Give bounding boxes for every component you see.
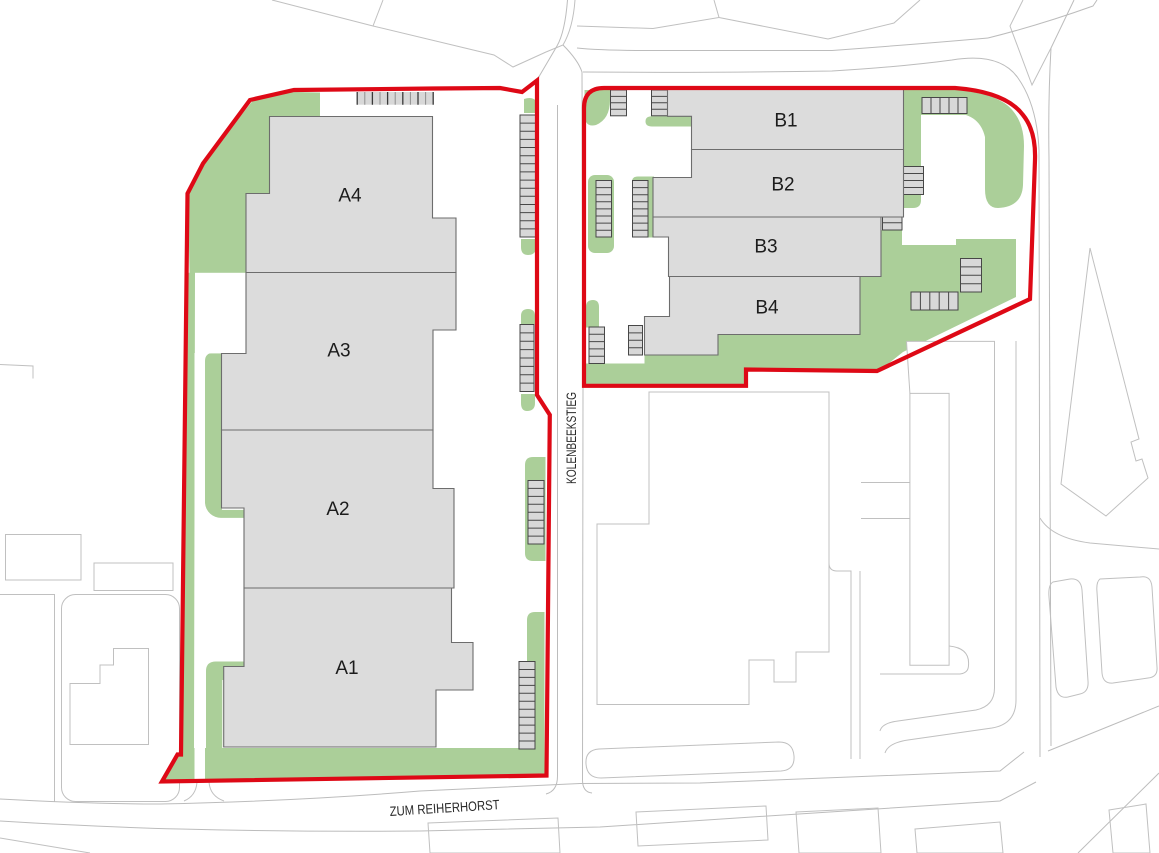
- svg-text:A4: A4: [338, 186, 362, 207]
- svg-text:B4: B4: [755, 298, 779, 319]
- svg-text:A3: A3: [327, 341, 350, 362]
- svg-text:A2: A2: [326, 499, 349, 520]
- svg-text:KOLENBEEKSTIEG: KOLENBEEKSTIEG: [564, 392, 579, 484]
- svg-text:A1: A1: [335, 658, 358, 679]
- svg-text:B3: B3: [754, 237, 777, 258]
- svg-text:B2: B2: [771, 175, 794, 196]
- svg-text:B1: B1: [774, 111, 797, 132]
